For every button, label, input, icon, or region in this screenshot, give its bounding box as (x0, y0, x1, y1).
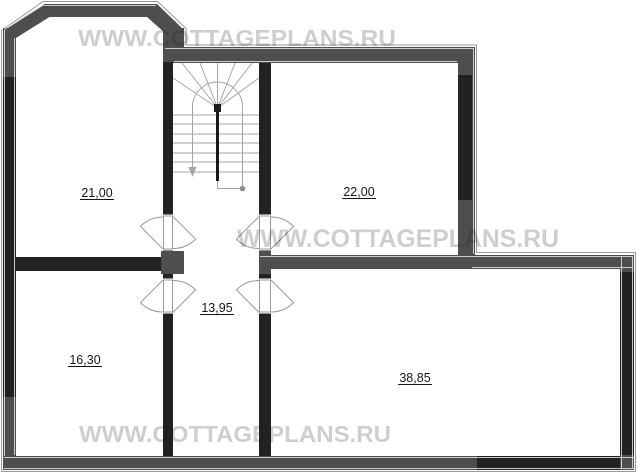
room-area-label: 21,00 (81, 186, 112, 200)
room-area-label: 22,00 (343, 185, 374, 199)
watermark-text: WWW.COTTAGEPLANS.RU (237, 225, 559, 253)
room-area-label: 38,85 (399, 371, 430, 385)
stair-stringer-cap (214, 104, 221, 112)
door-swing-icon (236, 279, 293, 314)
watermark-text: WWW.COTTAGEPLANS.RU (78, 25, 396, 51)
door-swing-icon (140, 215, 195, 251)
wall-junction-blocks (161, 251, 271, 274)
room-labels: 21,00 22,00 13,95 16,30 38,85 (68, 185, 432, 385)
stair-stringer (216, 106, 219, 181)
room-area-label: 16,30 (69, 353, 100, 367)
floor-plan-canvas: 21,00 22,00 13,95 16,30 38,85 WWW.COTTAG… (0, 0, 638, 473)
floor-plan: 21,00 22,00 13,95 16,30 38,85 WWW.COTTAG… (0, 0, 638, 473)
stair-walkline-dot (240, 186, 246, 192)
room-area-label: 13,95 (201, 301, 232, 315)
watermark-text: WWW.COTTAGEPLANS.RU (79, 421, 391, 447)
staircase-icon (173, 63, 259, 191)
door-swing-icon (140, 279, 195, 314)
